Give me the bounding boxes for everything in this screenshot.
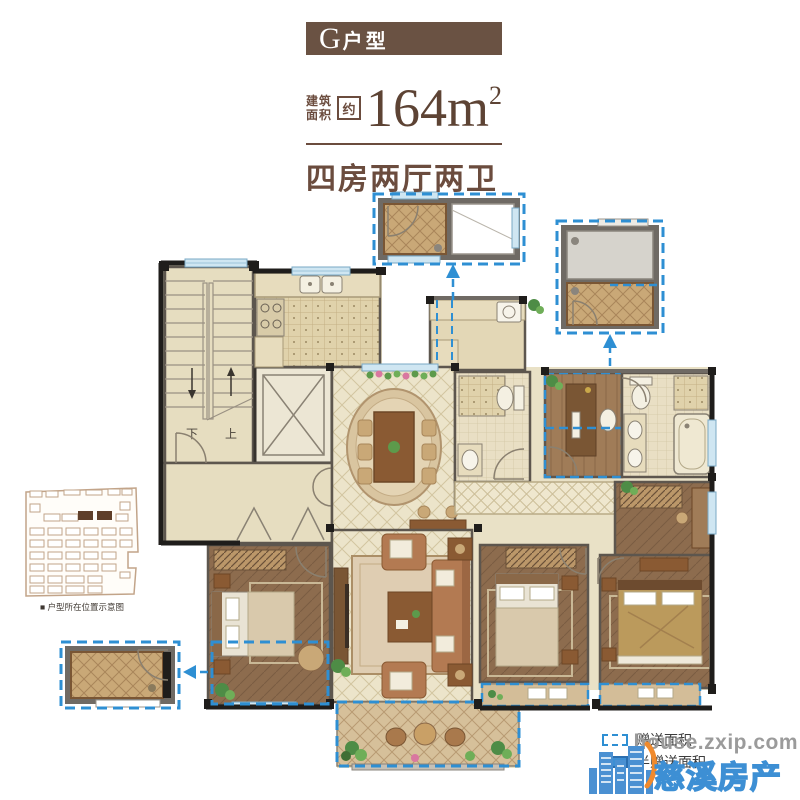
bed-icon bbox=[618, 580, 702, 664]
gift-arrow-up-icon bbox=[603, 334, 617, 348]
site-map: ■ 户型所在位置示意图 bbox=[16, 482, 148, 616]
laundry-room bbox=[430, 300, 525, 370]
master-bedroom bbox=[598, 555, 712, 688]
floorplan-page: G 户型 建筑 面积 约 164m2 四房两厅两卫 bbox=[0, 0, 800, 800]
header-divider bbox=[306, 143, 502, 145]
balcony bbox=[337, 702, 519, 770]
toilet-icon bbox=[630, 377, 652, 409]
dressing-area bbox=[615, 482, 712, 557]
bed-icon bbox=[212, 592, 294, 656]
area-label-line1: 建筑 bbox=[306, 94, 332, 108]
detached-room-top-right bbox=[557, 219, 663, 366]
approx-badge: 约 bbox=[337, 96, 361, 120]
area-value-wrap: 164m2 bbox=[366, 81, 502, 135]
bedroom-middle bbox=[480, 545, 588, 682]
bathtub-icon bbox=[674, 414, 710, 474]
bed-icon bbox=[496, 574, 558, 666]
tv-cabinet-icon bbox=[334, 568, 349, 664]
flower-balcony-master bbox=[600, 684, 700, 706]
watermark-site-name: 慈溪房产网 bbox=[654, 752, 800, 800]
area-value: 164m bbox=[366, 78, 489, 138]
hallway bbox=[455, 482, 615, 514]
site-map-caption: ■ 户型所在位置示意图 bbox=[40, 602, 124, 612]
main-bathroom bbox=[455, 372, 530, 482]
area-label: 建筑 面积 bbox=[306, 94, 332, 123]
double-vanity-icon bbox=[624, 414, 646, 472]
master-bathroom bbox=[622, 373, 712, 477]
unit-type-letter: G bbox=[319, 22, 341, 55]
bedroom-left bbox=[208, 545, 330, 709]
dining-room bbox=[332, 364, 466, 545]
buildings-logo-icon bbox=[587, 740, 659, 798]
coffee-table-icon bbox=[388, 592, 432, 642]
gift-arrow-up-icon bbox=[446, 264, 460, 278]
watermark: house.zxip.com 慈溪房产网 bbox=[585, 726, 800, 800]
stairs-down-label: 下 bbox=[186, 427, 198, 441]
rooms-summary: 四房两厅两卫 bbox=[306, 154, 502, 198]
detached-room-bottom-left bbox=[61, 642, 179, 708]
area-row: 建筑 面积 约 164m2 bbox=[306, 81, 502, 135]
header: G 户型 建筑 面积 约 164m2 四房两厅两卫 bbox=[306, 22, 502, 198]
stairs-up-label: 上 bbox=[225, 427, 237, 441]
gift-arrow-left-icon bbox=[183, 665, 196, 679]
stove-icon bbox=[257, 299, 284, 336]
elevator bbox=[255, 367, 332, 463]
unit-type-banner: G 户型 bbox=[306, 22, 502, 55]
living-room bbox=[332, 530, 472, 702]
detached-room-top-left bbox=[374, 192, 524, 300]
sofa-icon bbox=[432, 560, 470, 672]
area-label-line2: 面积 bbox=[306, 108, 332, 122]
sink-icon bbox=[458, 444, 482, 476]
dining-table bbox=[358, 412, 436, 484]
flower-balcony-middle bbox=[482, 684, 588, 706]
toilet-icon bbox=[497, 386, 524, 410]
unit-type-label: 户型 bbox=[343, 26, 389, 59]
area-superscript: 2 bbox=[489, 81, 502, 110]
kitchen bbox=[255, 273, 380, 367]
